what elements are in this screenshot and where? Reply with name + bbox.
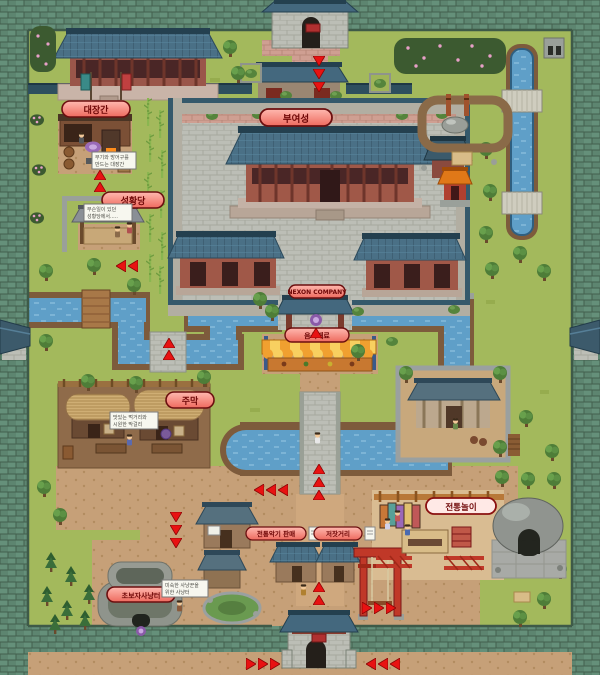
red-banner — [122, 74, 131, 90]
svg-text:전통악기 판매: 전통악기 판매 — [257, 529, 295, 538]
signboard — [208, 526, 220, 535]
door[interactable] — [374, 264, 390, 288]
svg-text:부여성: 부여성 — [283, 113, 309, 125]
player-sprite[interactable] — [315, 432, 320, 443]
svg-text:무슨일이 있던: 무슨일이 있던 — [87, 206, 117, 213]
hall-roof — [54, 32, 222, 58]
label-shop-right: 저잣거리 — [314, 527, 375, 540]
barrel — [63, 446, 73, 459]
gate-plate — [312, 634, 326, 642]
hall-door[interactable] — [320, 170, 340, 202]
svg-text:전통놀이: 전통놀이 — [445, 502, 476, 513]
npc-sprite[interactable] — [79, 132, 84, 143]
south-gate-arch[interactable] — [306, 640, 326, 668]
npc-sprite[interactable] — [177, 600, 182, 611]
teal-banner — [81, 74, 90, 90]
door[interactable] — [434, 264, 450, 288]
pot — [161, 429, 171, 439]
gate-plate — [306, 24, 320, 32]
door[interactable] — [88, 424, 100, 438]
straw-mat — [452, 152, 472, 165]
compound-south-gate[interactable] — [276, 295, 354, 330]
red-mat — [452, 527, 471, 547]
orange-roof — [438, 170, 472, 184]
npc-sprite[interactable] — [385, 518, 390, 529]
npc-sprite[interactable] — [115, 226, 120, 237]
npc-sprite[interactable] — [127, 434, 132, 445]
svg-text:만드는 대장간: 만드는 대장간 — [95, 161, 125, 168]
npc-sprite[interactable] — [395, 510, 400, 521]
straw-mat — [514, 592, 530, 602]
roof — [408, 382, 500, 400]
label-nexon: NEXON COMPANY — [287, 285, 347, 298]
shrine-sign: 무슨일이 있던 성황당에서..... — [84, 204, 132, 221]
blacksmith-sign: 무기와 방어구를 만드는 대장간 — [92, 152, 136, 169]
npc-sprite[interactable] — [127, 222, 132, 233]
door[interactable] — [334, 566, 344, 582]
svg-text:미숙한 사냥꾼을: 미숙한 사냥꾼을 — [165, 582, 199, 589]
barrel — [64, 159, 74, 169]
label-blacksmith: 대장간 — [62, 101, 130, 117]
door[interactable] — [190, 262, 206, 286]
svg-text:시원한 막걸리: 시원한 막걸리 — [113, 421, 142, 428]
svg-text:대장간: 대장간 — [84, 104, 110, 116]
hall-steps — [316, 210, 344, 220]
mound-entrance[interactable] — [132, 614, 150, 627]
door[interactable] — [220, 530, 232, 548]
svg-text:저잣거리: 저잣거리 — [326, 529, 350, 538]
npc-sprite[interactable] — [405, 524, 410, 535]
bridge-rail — [300, 392, 304, 494]
east-hall[interactable] — [354, 233, 466, 297]
label-tavern: 주막 — [166, 392, 214, 408]
bridge-rail — [336, 392, 340, 494]
barrel — [64, 147, 74, 157]
south-gate-roof — [280, 614, 358, 632]
door[interactable] — [292, 566, 302, 582]
shop-west-house[interactable] — [196, 502, 258, 548]
svg-text:주막: 주막 — [182, 395, 199, 407]
label-castle: 부여성 — [260, 109, 332, 126]
stone-fence — [62, 196, 67, 252]
tavern-sign: 맛있는 먹거리와 시원한 막걸리 — [110, 412, 158, 429]
window — [174, 426, 184, 436]
svg-text:성황당에서.....: 성황당에서..... — [87, 213, 118, 220]
seesaw-board[interactable] — [408, 539, 442, 546]
main-hall[interactable] — [226, 126, 434, 220]
label-games: 전통놀이 — [426, 498, 496, 514]
npc-sprite[interactable] — [301, 584, 306, 595]
svg-text:초보자사냥터: 초보자사냥터 — [122, 591, 161, 600]
door[interactable] — [404, 264, 420, 288]
inner-gate-roof — [250, 66, 348, 82]
table — [96, 444, 126, 453]
door[interactable] — [222, 262, 238, 286]
jangseung-pole — [446, 94, 451, 116]
main-hall-roof — [226, 131, 434, 164]
jar — [479, 438, 487, 446]
shop-a[interactable] — [270, 542, 322, 582]
wood-stack — [508, 434, 520, 456]
game-map: 대장간 부여성 성황당 NEXON COMPANY 음식재료 주막 전통놀이 초… — [0, 0, 600, 675]
svg-text:맛있는 먹거리와: 맛있는 먹거리와 — [113, 414, 147, 421]
jar — [470, 436, 478, 444]
south-gate[interactable] — [280, 610, 358, 668]
hunting-sign: 미숙한 사냥꾼을 위한 사냥터 — [162, 580, 208, 597]
shrine-door[interactable] — [451, 186, 459, 200]
svg-text:위한 사냥터: 위한 사냥터 — [165, 589, 190, 596]
table — [152, 444, 182, 453]
great-hall[interactable] — [54, 28, 222, 106]
shop-b[interactable] — [316, 542, 360, 582]
north-gate[interactable] — [262, 0, 358, 48]
west-hall[interactable] — [168, 231, 284, 295]
svg-text:무기와 방어구를: 무기와 방어구를 — [95, 154, 129, 161]
shrine-altar — [84, 228, 132, 244]
east-residence[interactable] — [398, 366, 520, 460]
jangseung-pole — [464, 94, 469, 116]
door[interactable] — [254, 262, 270, 286]
svg-text:NEXON COMPANY: NEXON COMPANY — [287, 289, 347, 296]
garden-rock — [442, 117, 468, 133]
npc-sprite[interactable] — [453, 418, 458, 429]
